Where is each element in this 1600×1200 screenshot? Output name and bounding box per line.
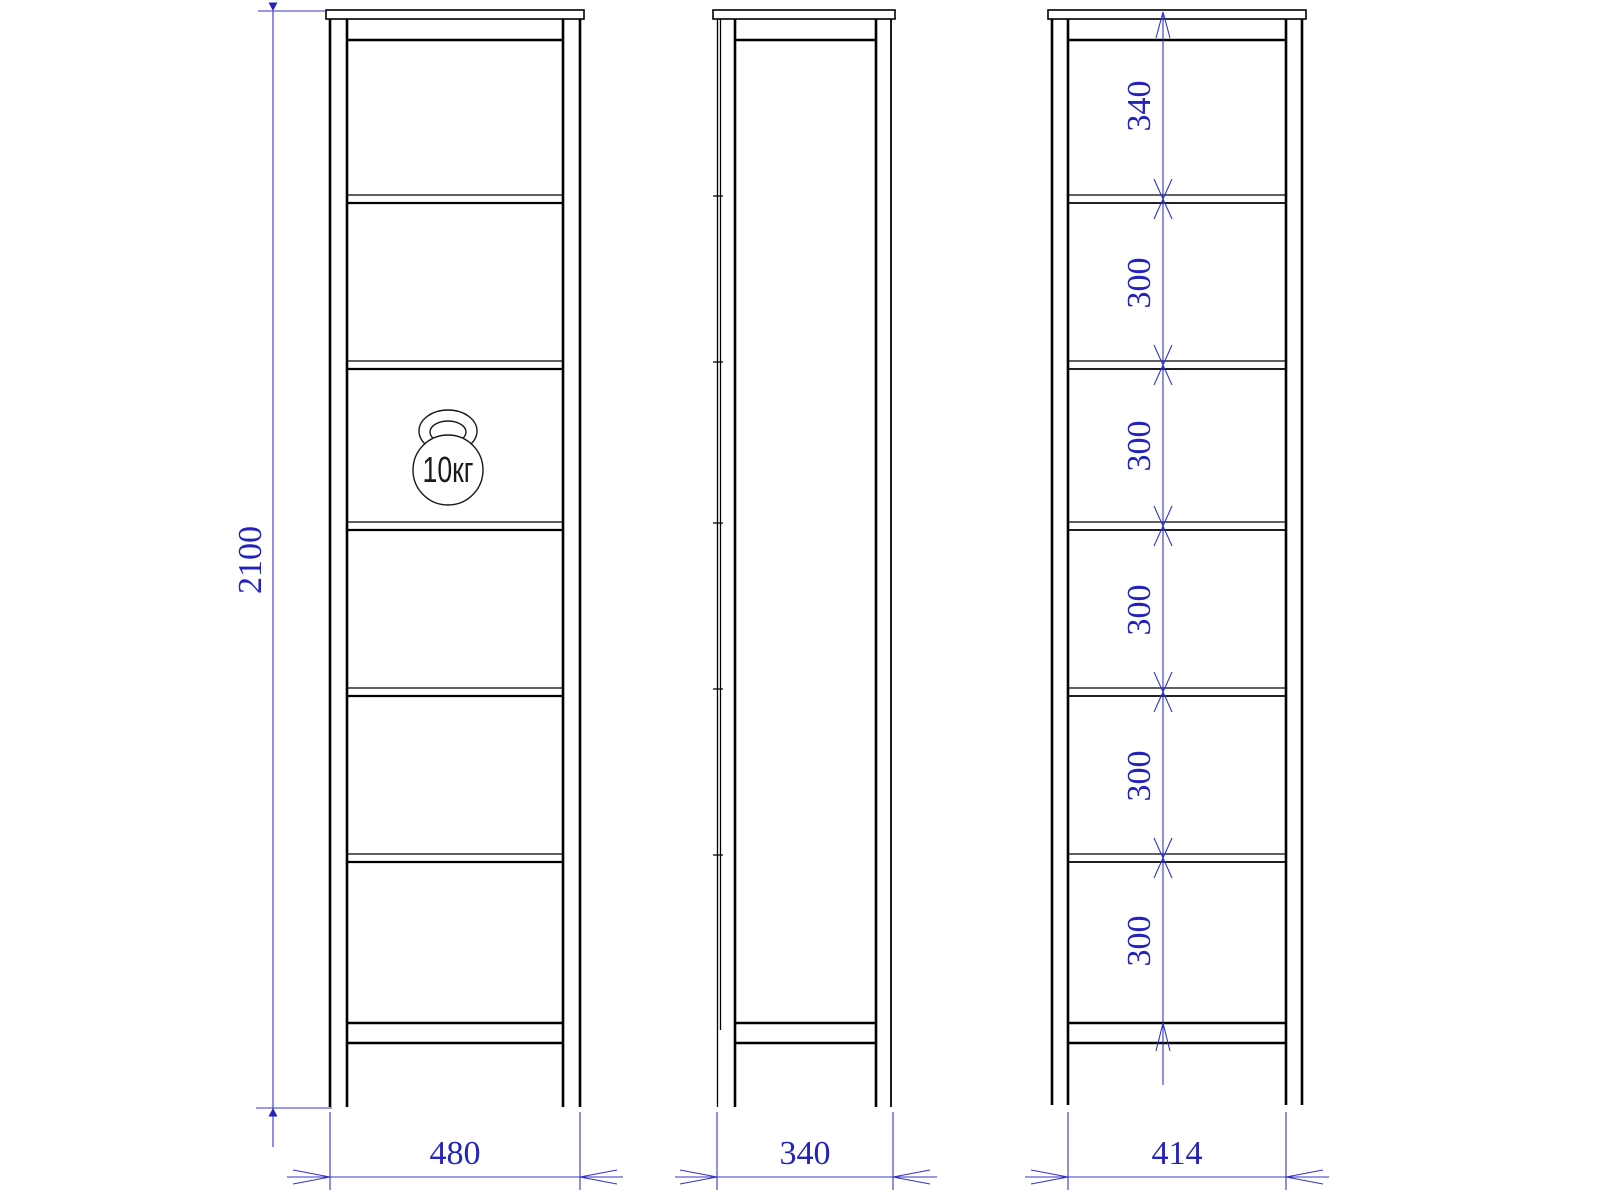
back-legs [1052,19,1302,1105]
dimension-side-depth: 340 [675,1112,937,1190]
chain-label-1: 340 [1121,81,1158,132]
back-width-label: 414 [1152,1135,1203,1172]
back-top-board [1048,10,1306,19]
side-rails [735,40,876,1043]
height-dimension-label: 2100 [232,526,269,594]
chain-label-6: 300 [1121,916,1158,967]
chain-label-2: 300 [1121,258,1158,309]
front-legs [330,19,580,1107]
technical-drawing-canvas: 10кг 2100 480 340 [0,0,1600,1200]
height-arrow-top [269,3,278,12]
side-view [713,10,895,1107]
side-top-board [713,10,895,19]
dimension-back-width: 414 [1025,1112,1329,1190]
front-top-board [326,10,584,19]
front-view: 10кг [326,10,584,1107]
kettlebell-load-icon: 10кг [413,410,483,505]
side-back-panel-edges [718,19,721,1107]
dimension-front-width: 480 [287,1112,623,1190]
side-legs [735,19,876,1107]
chain-label-4: 300 [1121,585,1158,636]
dimension-shelf-chain: 340 300 300 300 300 300 [1121,12,1172,1085]
front-shelf-bottom-edges [347,203,563,862]
chain-label-5: 300 [1121,751,1158,802]
back-shelf-top-edges [1068,195,1286,854]
front-rails [347,40,563,1043]
chain-label-3: 300 [1121,421,1158,472]
height-arrow-bottom [269,1108,278,1117]
shelf-load-label: 10кг [423,449,474,490]
back-shelf-bottom-edges [1068,203,1286,862]
dimension-overall-height: 2100 [232,3,332,1148]
back-rails [1068,40,1286,1043]
back-view [1048,10,1306,1105]
front-shelf-top-edges [347,195,563,854]
front-width-label: 480 [430,1135,481,1172]
side-depth-label: 340 [780,1135,831,1172]
